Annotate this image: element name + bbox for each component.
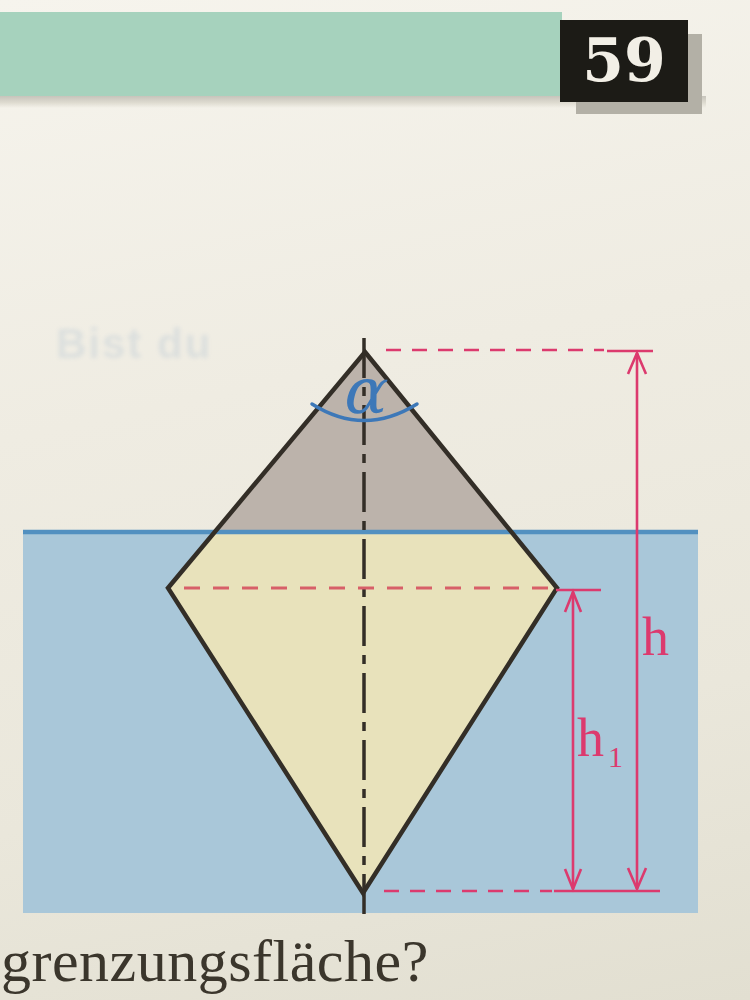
footer-question-fragment: grenzungsfläche?	[1, 928, 429, 994]
textbook-page: 59 Bist du α	[0, 0, 750, 1000]
floating-body-figure: α h h1	[0, 0, 750, 1000]
h-label: h	[642, 607, 669, 667]
alpha-angle-label: α	[340, 354, 388, 428]
h1-label-base: h	[577, 708, 604, 768]
h1-label-subscript: 1	[608, 740, 623, 773]
